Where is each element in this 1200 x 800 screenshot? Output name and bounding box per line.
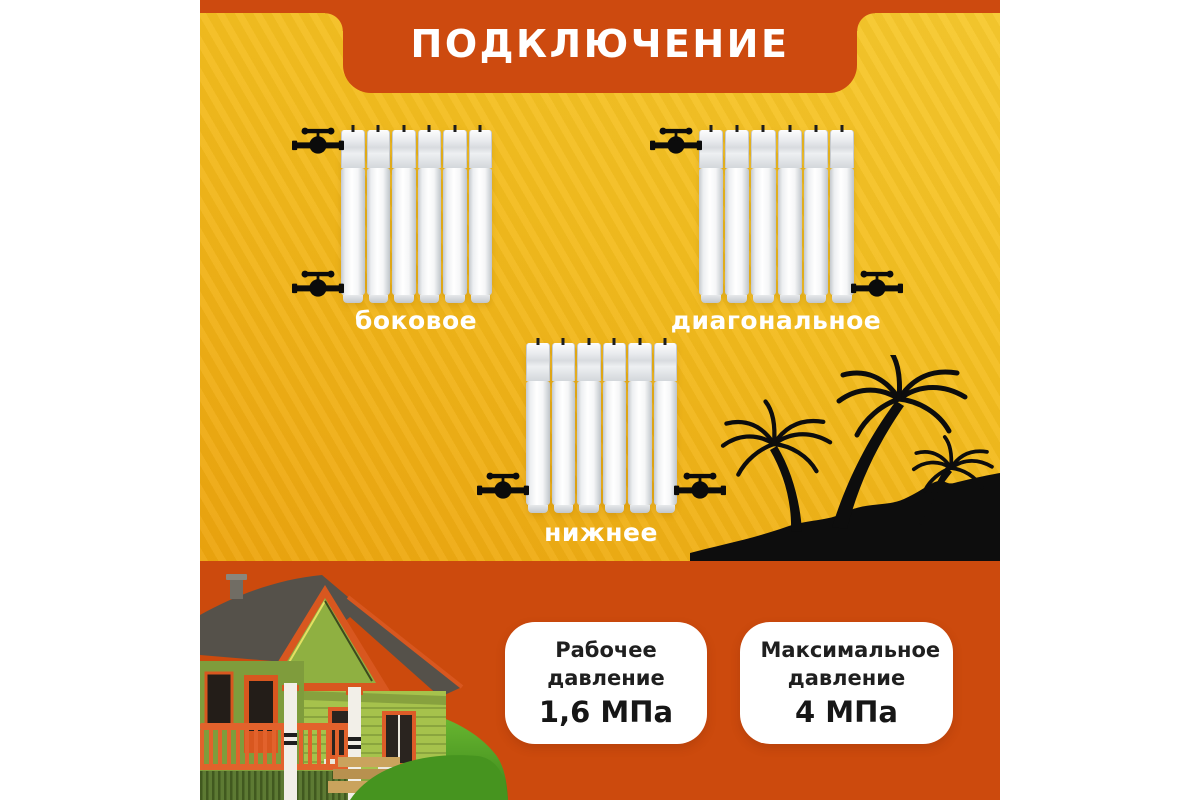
spec-label: Рабочее давление: [520, 637, 692, 692]
spec-card-working-pressure: Рабочее давление 1,6 МПа: [505, 622, 707, 744]
radiator-section: [552, 343, 576, 513]
radiator-side-connection: [340, 130, 493, 303]
radiator-section: [469, 130, 493, 303]
page-title: ПОДКЛЮЧЕНИЕ: [411, 22, 790, 72]
valve-icon: [477, 470, 529, 503]
radiator-bottom-connection: [525, 343, 678, 513]
palm-trees-icon: [690, 355, 1000, 561]
valve-icon: [674, 470, 726, 503]
radiator-section: [526, 343, 550, 513]
label-side-connection: боковое: [316, 306, 516, 335]
label-bottom-connection: нижнее: [501, 518, 701, 547]
house-illustration: [200, 565, 510, 800]
title-banner: ПОДКЛЮЧЕНИЕ: [343, 0, 857, 93]
radiator-section: [367, 130, 391, 303]
radiator-section: [443, 130, 467, 303]
radiator-section: [725, 130, 749, 303]
valve-icon: [292, 268, 344, 301]
radiator-section: [804, 130, 828, 303]
radiator-section: [392, 130, 416, 303]
spec-value: 4 МПа: [795, 695, 898, 729]
radiator-section: [603, 343, 627, 513]
radiator-section: [778, 130, 802, 303]
spec-card-max-pressure: Максимальное давление 4 МПа: [740, 622, 953, 744]
radiator-section: [628, 343, 652, 513]
valve-icon: [292, 125, 344, 158]
radiator-diagonal-connection: [698, 130, 855, 303]
radiator-section: [341, 130, 365, 303]
radiator-section: [577, 343, 601, 513]
radiator-section: [751, 130, 775, 303]
spec-label: Максимальное давление: [761, 637, 933, 692]
spec-value: 1,6 МПа: [539, 695, 673, 729]
valve-icon: [650, 125, 702, 158]
page-background: ПОДКЛЮЧЕНИЕ: [0, 0, 1200, 800]
radiator-section: [699, 130, 723, 303]
infographic-card: ПОДКЛЮЧЕНИЕ: [200, 0, 1000, 800]
valve-icon: [851, 268, 903, 301]
label-diagonal-connection: диагональное: [656, 306, 896, 335]
radiator-section: [418, 130, 442, 303]
